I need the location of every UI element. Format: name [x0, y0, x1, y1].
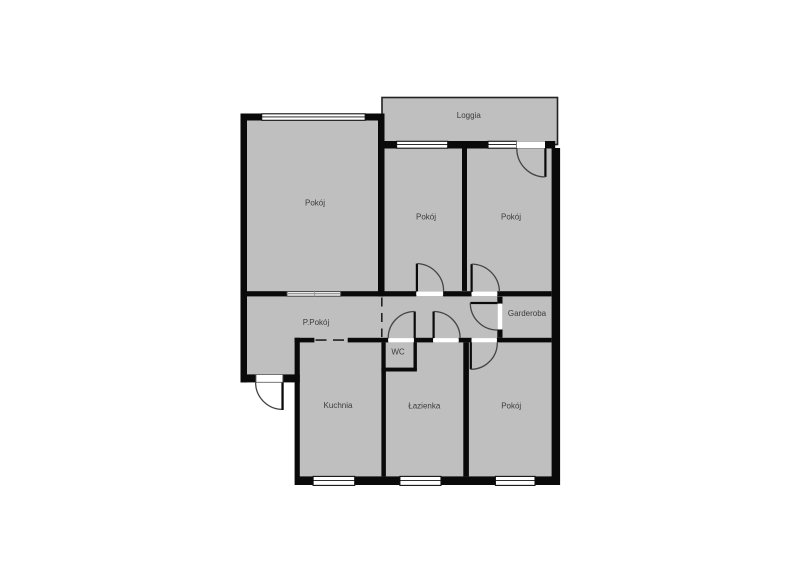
svg-text:Pokój: Pokój	[501, 213, 521, 222]
svg-text:Łazienka: Łazienka	[408, 402, 441, 411]
svg-text:Loggia: Loggia	[457, 111, 482, 120]
svg-text:P.Pokój: P.Pokój	[303, 318, 330, 327]
svg-text:Pokój: Pokój	[416, 213, 436, 222]
svg-text:Kuchnia: Kuchnia	[324, 401, 353, 410]
svg-text:Garderoba: Garderoba	[508, 309, 547, 318]
svg-text:Pokój: Pokój	[501, 402, 521, 411]
svg-text:WC: WC	[391, 348, 405, 357]
svg-text:Pokój: Pokój	[305, 199, 325, 208]
